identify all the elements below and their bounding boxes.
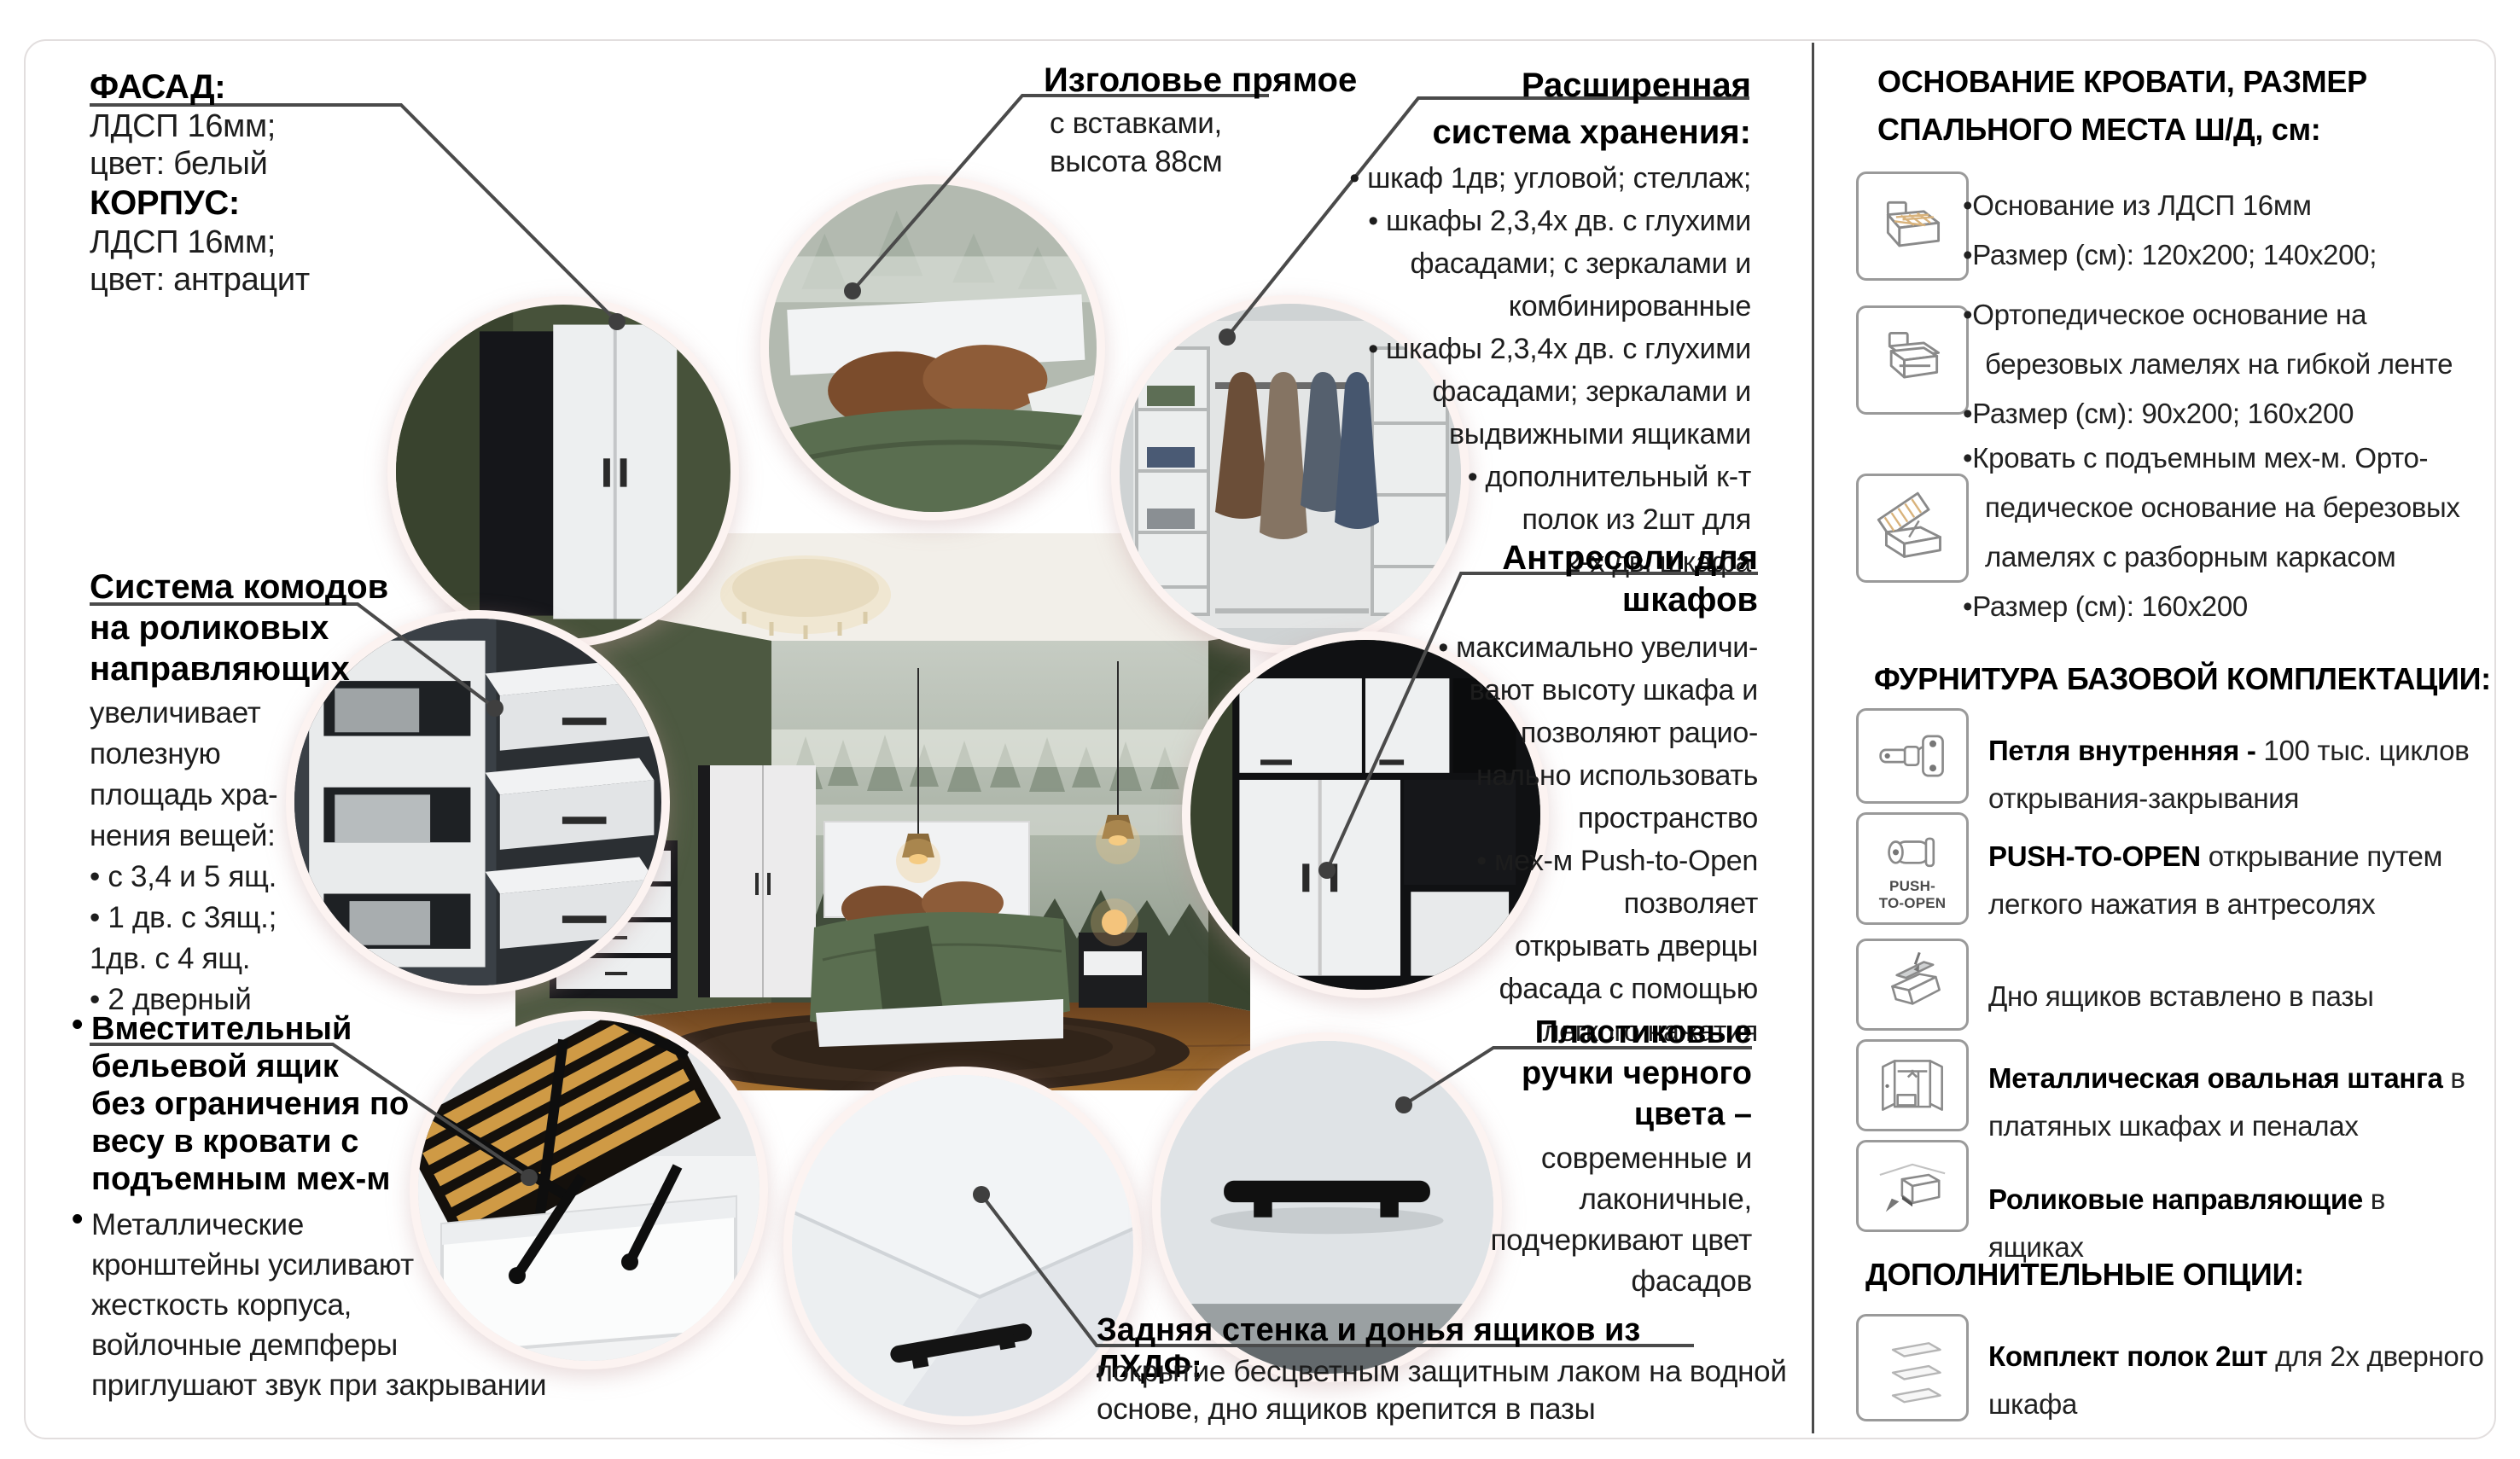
- callout-facade-material: ФАСАД: ЛДСП 16мм; цвет: белый КОРПУС: ЛД…: [90, 67, 457, 299]
- drawer-bottom-icon: [1871, 951, 1953, 1018]
- storage-list: • шкаф 1дв; угловой; стеллаж;• шкафы 2,3…: [1324, 152, 1751, 584]
- shelves-kit-text: Комплект полок 2шт для 2х дверного шкафа: [1988, 1333, 2488, 1428]
- sidebar-divider: [1812, 43, 1814, 1433]
- drawer-bottom-text: Дно ящиков вставлено в пазы: [1988, 973, 2488, 1020]
- storage-title-2: система хранения:: [1324, 106, 1751, 152]
- facade-line: цвет: белый: [90, 145, 457, 183]
- drawer-bottom-icon-box: [1856, 939, 1969, 1031]
- bed-lift-text: •Кровать с подъемным мех-м. Орто-педичес…: [1963, 433, 2492, 631]
- push-to-open-icon: [1874, 825, 1951, 878]
- shelves-kit-bold: Комплект полок 2шт: [1988, 1340, 2267, 1372]
- antresol-title-1: Антресоли для: [1331, 538, 1758, 578]
- callout-headboard-title: Изголовье прямое: [1044, 61, 1357, 99]
- oval-rod-text: Металлическая овальная штанга в платяных…: [1988, 1055, 2488, 1150]
- oval-rod-icon-box: [1856, 1039, 1969, 1131]
- hinge-icon-box: [1856, 708, 1969, 804]
- roller-guides-bold: Роликовые направляющие: [1988, 1183, 2363, 1215]
- bullet-marker: •: [72, 1201, 83, 1238]
- callout-antresol: Антресоли для шкафов • максимально увели…: [1331, 538, 1758, 1053]
- drawer-inside-closeup: [792, 1075, 1133, 1416]
- korpus-title: КОРПУС:: [90, 183, 457, 224]
- bed-base-icon-box: [1856, 171, 1969, 281]
- push-to-open-text: PUSH-TO-OPEN открывание путем легкого на…: [1988, 833, 2488, 928]
- photo-circle-drawer-inside: [783, 1067, 1142, 1425]
- bullet-marker: •: [72, 1007, 83, 1043]
- bed-ortho-icon: [1871, 323, 1953, 397]
- drawer-bottom-rest: Дно ящиков вставлено в пазы: [1988, 980, 2374, 1012]
- callout-commode-system: Система комодовна роликовыхнаправляющих …: [90, 567, 499, 1020]
- bed-base-text: •Основание из ЛДСП 16мм•Размер (см): 120…: [1963, 181, 2492, 280]
- facade-line: ЛДСП 16мм;: [90, 108, 457, 145]
- hinge-text-bold: Петля внутренняя -: [1988, 735, 2263, 766]
- callout-bed-drawer-title: Вместительныйбельевой ящикбез ограничени…: [91, 1010, 569, 1198]
- korpus-line: цвет: антрацит: [90, 261, 457, 299]
- push-to-open-icon-box: PUSH-TO-OPEN: [1856, 812, 1969, 925]
- storage-title-1: Расширенная: [1324, 65, 1751, 106]
- photo-circle-headboard: [760, 176, 1105, 520]
- bed-base-icon: [1871, 189, 1953, 263]
- sidebar-title-fittings: ФУРНИТУРА БАЗОВОЙ КОМПЛЕКТАЦИИ:: [1874, 655, 2491, 703]
- commodes-list: увеличиваетполезнуюплощадь хра-нения вещ…: [90, 689, 499, 1020]
- shelves-kit-icon: [1871, 1328, 1953, 1407]
- oval-rod-bold: Металлическая овальная штанга: [1988, 1062, 2443, 1094]
- roller-guides-icon-box: [1856, 1140, 1969, 1232]
- bed-lift-icon: [1871, 491, 1953, 565]
- commodes-title: Система комодовна роликовыхнаправляющих: [90, 567, 499, 689]
- callout-storage-system: Расширенная система хранения: • шкаф 1дв…: [1324, 65, 1751, 584]
- korpus-line: ЛДСП 16мм;: [90, 224, 457, 261]
- sidebar-title-options: ДОПОЛНИТЕЛЬНЫЕ ОПЦИИ:: [1865, 1251, 2304, 1299]
- sidebar-title-bed-base: ОСНОВАНИЕ КРОВАТИ, РАЗМЕРСПАЛЬНОГО МЕСТА…: [1877, 58, 2367, 154]
- antresol-list: • максимально увеличи-вают высоту шкафа …: [1331, 619, 1758, 1053]
- push-to-open-label: PUSH-TO-OPEN: [1879, 878, 1947, 912]
- bed-ortho-icon-box: [1856, 305, 1969, 415]
- headboard-closeup: [769, 184, 1097, 512]
- push-text-bold: PUSH-TO-OPEN: [1988, 840, 2209, 872]
- product-infographic-page: ФАСАД: ЛДСП 16мм; цвет: белый КОРПУС: ЛД…: [0, 0, 2520, 1459]
- handles-title: Пластиковыеручки черногоцвета –: [1325, 1012, 1752, 1135]
- oval-rod-icon: [1871, 1052, 1953, 1119]
- callout-back-panel-body: покрытие бесцветным защитным лаком на во…: [1097, 1353, 1779, 1428]
- callout-headboard-body: с вставками,высота 88см: [1050, 104, 1222, 181]
- callout-plastic-handles: Пластиковыеручки черногоцвета – современ…: [1325, 1012, 1752, 1302]
- shelves-kit-icon-box: [1856, 1314, 1969, 1421]
- antresol-title-2: шкафов: [1331, 578, 1758, 619]
- handles-body: современные илаконичные,подчеркивают цве…: [1325, 1135, 1752, 1302]
- bed-lift-icon-box: [1856, 474, 1969, 583]
- callout-bed-drawer-body: Металлическиекронштейны усиливаютжесткос…: [91, 1205, 569, 1405]
- facade-title: ФАСАД:: [90, 67, 457, 108]
- hinge-icon: [1871, 722, 1953, 790]
- bed-ortho-text: •Ортопедическое основание наберезовых ла…: [1963, 290, 2492, 439]
- roller-guides-icon: [1871, 1153, 1953, 1219]
- hinge-text: Петля внутренняя - 100 тыс. циклов откры…: [1988, 727, 2488, 823]
